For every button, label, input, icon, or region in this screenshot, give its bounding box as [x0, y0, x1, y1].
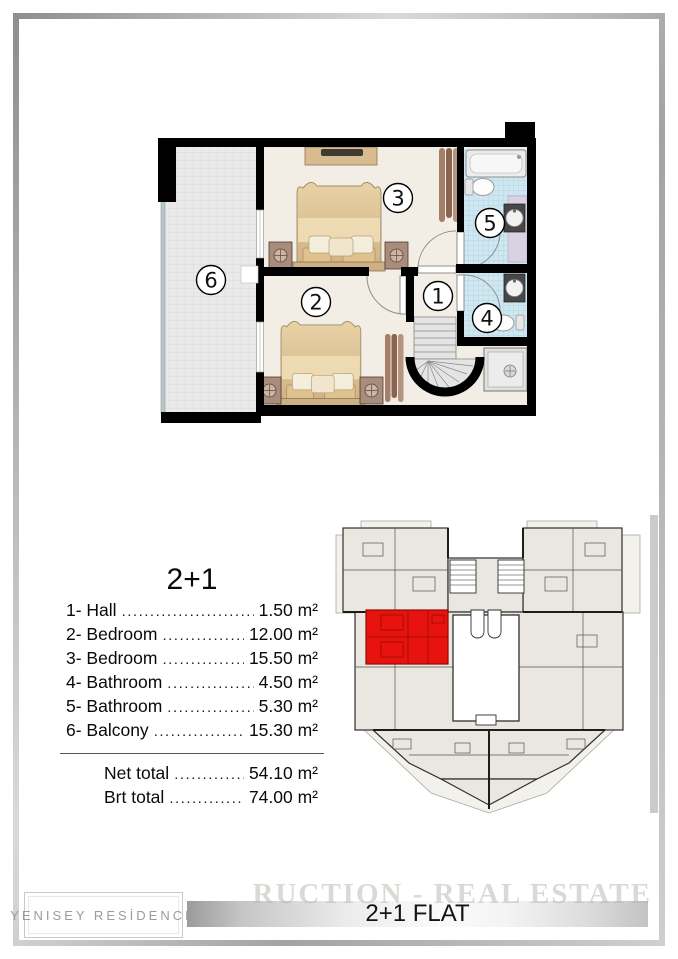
highlighted-flat [366, 610, 448, 664]
building-overview-plan [333, 515, 663, 815]
hall-door-leaf [418, 266, 456, 273]
curtain [439, 148, 459, 222]
room-number-bedroom3: 3 [391, 187, 404, 211]
room-number-bathroom4: 4 [480, 307, 493, 331]
legend-total-row: Brt total74.00 m² [66, 786, 318, 810]
top-left-wall-block [158, 138, 176, 202]
legend-row: 2- Bedroom12.00 m² [66, 623, 318, 647]
legend-row: 1- Hall1.50 m² [66, 599, 318, 623]
legend-row: 5- Bathroom5.30 m² [66, 695, 318, 719]
area-legend: 2+1 1- Hall1.50 m² 2- Bedroom12.00 m² 3-… [66, 564, 318, 810]
curtain [385, 334, 404, 402]
balcony-glass-rail [161, 200, 165, 414]
bedroom2-door-leaf [400, 276, 406, 314]
page-edge-shadow [650, 515, 658, 813]
flat-floor-plan: 1 2 3 4 5 6 [153, 120, 543, 432]
bed [277, 321, 364, 407]
company-watermark: RUCTION - REAL ESTATE [253, 878, 652, 911]
courtyard [453, 610, 519, 725]
legend-title: 2+1 [66, 564, 318, 596]
room-number-bathroom5: 5 [483, 212, 496, 236]
legend-row: 3- Bedroom15.50 m² [66, 647, 318, 671]
residence-name: YENISEY RESİDENCE [10, 908, 197, 923]
brochure-page: { "page": { "background": "#ffffff", "fr… [0, 0, 678, 959]
residence-name-box: YENISEY RESİDENCE [24, 892, 183, 938]
toilet [472, 179, 494, 196]
legend-total-row: Net total54.10 m² [66, 762, 318, 786]
room-number-bedroom2: 2 [309, 291, 322, 315]
bed [293, 182, 385, 271]
legend-row: 4- Bathroom4.50 m² [66, 671, 318, 695]
legend-row: 6- Balcony15.30 m² [66, 719, 318, 743]
balcony-bottom-wall [161, 412, 261, 423]
tv [321, 149, 363, 156]
bath4-door-leaf [457, 275, 464, 311]
legend-separator [60, 753, 324, 754]
room-number-hall: 1 [431, 285, 444, 309]
bath5-door-leaf [457, 232, 464, 268]
room-number-balcony: 6 [204, 269, 217, 293]
